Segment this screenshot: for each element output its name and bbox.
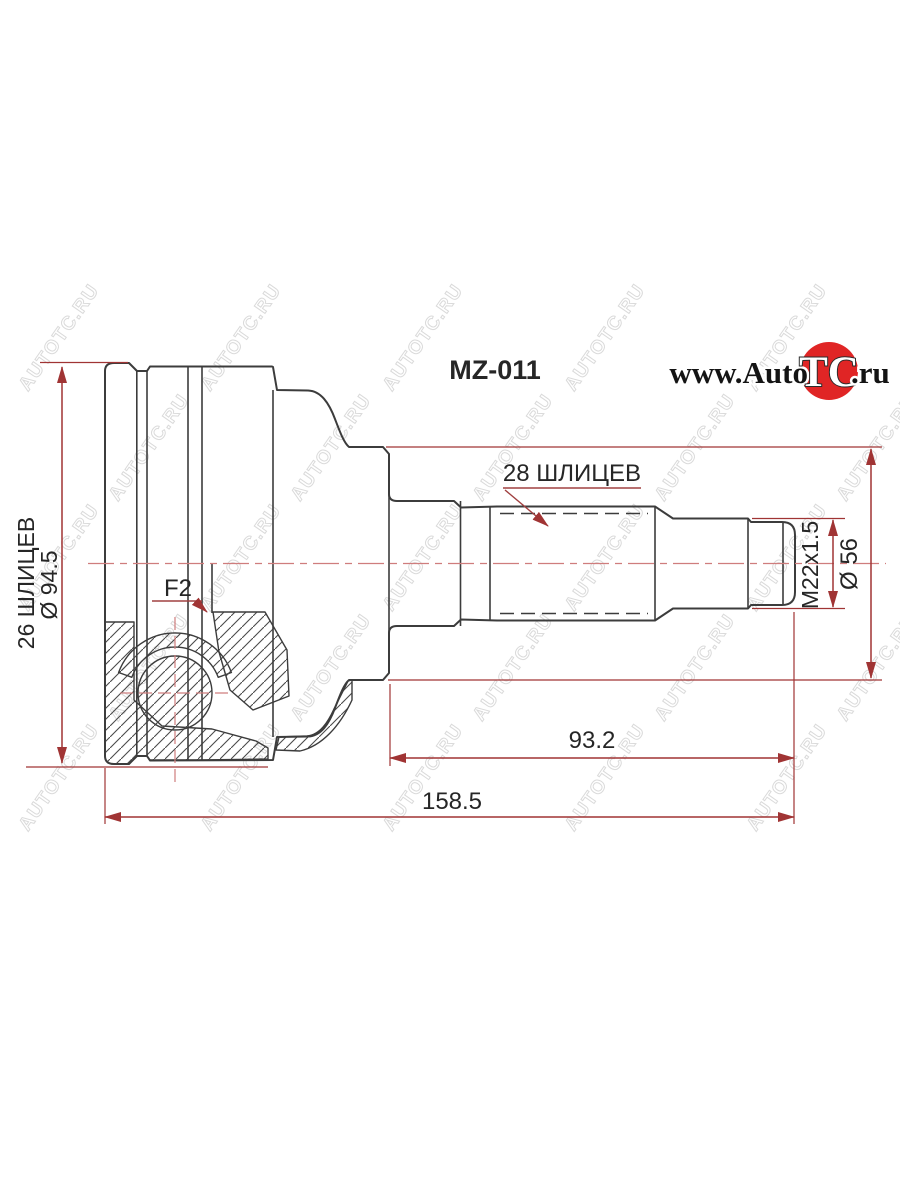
technical-drawing-svg: AUTOTC.RUAUTOTC.RUAUTOTC.RUAUTOTC.RUAUTO… <box>0 0 900 1200</box>
watermark-text: AUTOTC.RU <box>197 280 286 394</box>
watermark-text: AUTOTC.RU <box>833 610 900 724</box>
part-code-label: MZ-011 <box>449 355 541 385</box>
watermark-text: AUTOTC.RU <box>651 390 740 504</box>
watermark-text: AUTOTC.RU <box>651 610 740 724</box>
outer-diameter-label: Ø 94.5 <box>36 550 62 619</box>
watermark-text: AUTOTC.RU <box>287 610 376 724</box>
logo-prefix: www.Auto <box>669 355 808 390</box>
watermark-text: AUTOTC.RU <box>105 390 194 504</box>
overall-length-label: 158.5 <box>422 788 482 815</box>
watermark-text: AUTOTC.RU <box>15 280 104 394</box>
watermark-text: AUTOTC.RU <box>833 390 900 504</box>
spline-section-length-label: 93.2 <box>569 727 616 754</box>
watermark-text: AUTOTC.RU <box>561 280 650 394</box>
logo-domain: .ru <box>851 355 890 390</box>
watermark-text: AUTOTC.RU <box>561 500 650 614</box>
shaft-splines-label: 28 ШЛИЦЕВ <box>503 460 641 487</box>
shaft-splines-leader <box>505 490 548 526</box>
watermark-text: AUTOTC.RU <box>379 500 468 614</box>
shaft-diameter-label: Ø 56 <box>836 538 863 590</box>
watermark-text: AUTOTC.RU <box>15 720 104 834</box>
watermark-text: AUTOTC.RU <box>469 610 558 724</box>
inner-race-section <box>213 612 289 710</box>
groove-label: F2 <box>164 575 192 602</box>
thread-label: M22x1.5 <box>797 521 823 609</box>
screenshot-root: AUTOTC.RUAUTOTC.RUAUTOTC.RUAUTOTC.RUAUTO… <box>0 0 900 1200</box>
logo-tc: TC <box>799 349 859 396</box>
